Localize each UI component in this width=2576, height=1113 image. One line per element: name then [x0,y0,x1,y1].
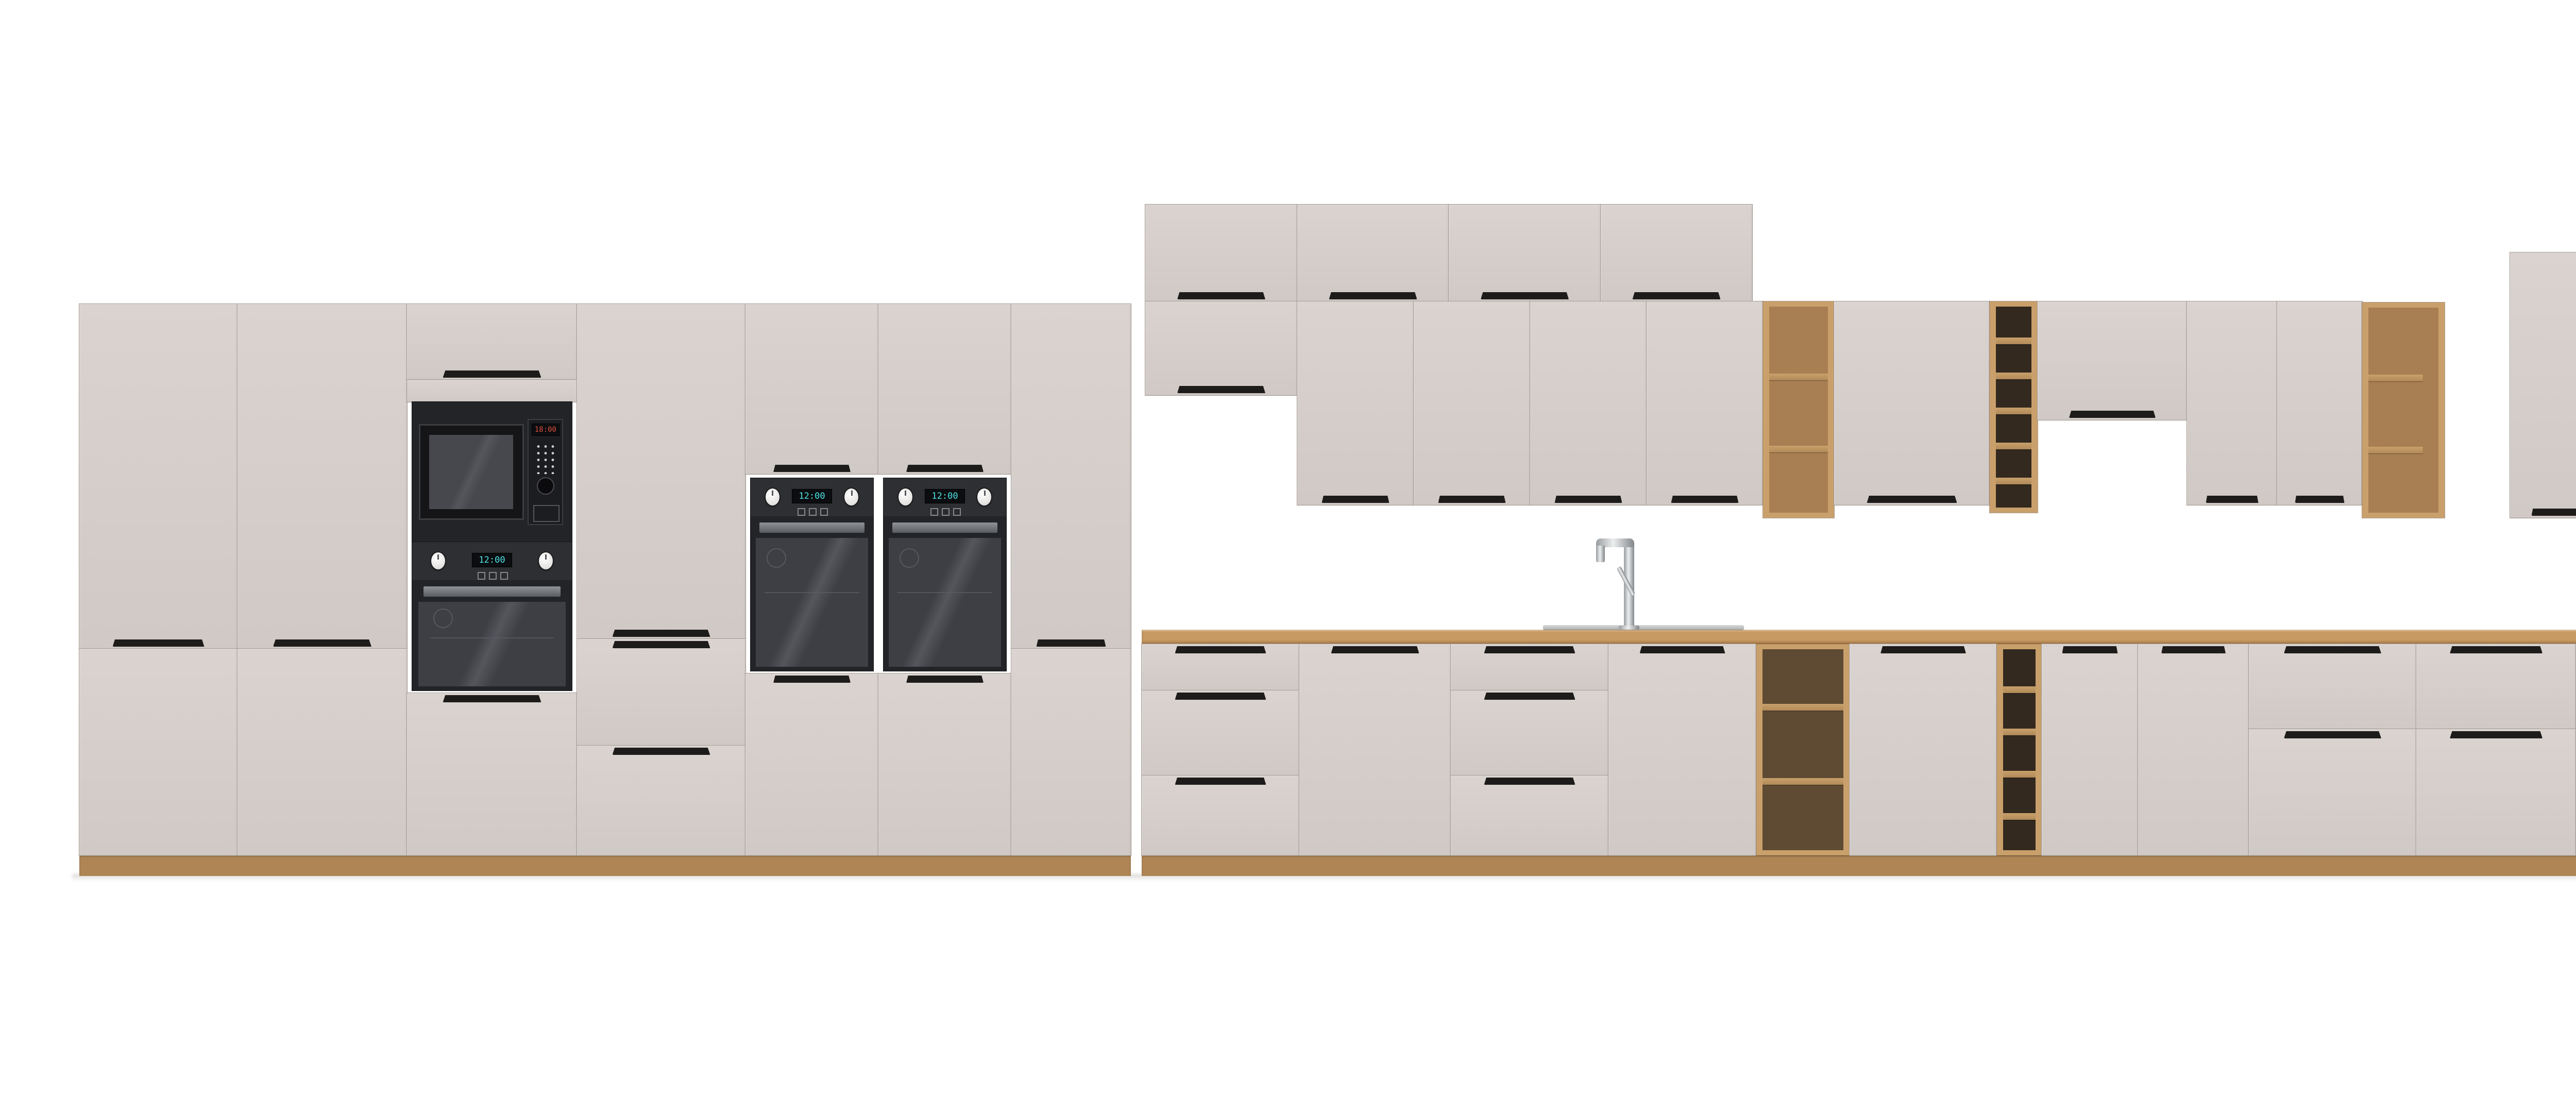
microwave-control-panel: 18:00 [529,420,562,524]
drawer-front[interactable] [878,673,1011,855]
wall-top-box-door[interactable] [1601,205,1752,301]
drawer-front[interactable] [577,639,745,746]
oven-door-handle[interactable] [423,586,561,597]
handle[interactable] [273,639,371,647]
handle[interactable] [1640,646,1725,653]
handle[interactable] [1880,646,1966,653]
oven-knob-left[interactable] [431,552,445,569]
handle[interactable] [1671,496,1739,503]
drawer-front[interactable] [577,746,745,855]
handle[interactable] [1633,292,1721,299]
handle[interactable] [613,748,710,755]
wall-door[interactable] [1647,301,1763,505]
base-door[interactable] [1850,644,1997,855]
shelf-board [1996,338,2031,344]
handle[interactable] [906,465,984,472]
shelf-board [1996,443,2031,449]
oven-door-glass[interactable] [418,602,565,686]
handle[interactable] [2284,731,2381,738]
shelf-board [2003,686,2036,693]
oven-display: 12:00 [925,490,964,503]
open-shelf-wall [1763,301,1834,518]
wall-top-box-door[interactable] [1449,205,1601,301]
top-box-door[interactable] [407,304,577,380]
handle[interactable] [1481,292,1569,299]
oven-door-glass[interactable] [756,538,869,667]
microwave-dial[interactable] [538,478,553,494]
handle[interactable] [613,641,710,648]
shelf-interior [2003,649,2036,850]
built-in-oven[interactable]: 12:00 [412,542,572,690]
handle[interactable] [2062,646,2118,653]
oven-knob-left[interactable] [766,488,779,505]
handle[interactable] [1484,778,1575,785]
handle[interactable] [613,630,710,637]
oven-control-panel: 12:00 [751,478,873,516]
wall-door[interactable] [1834,301,1990,505]
glass-reflection-circle [767,548,786,568]
drawer-front[interactable] [1142,644,1299,690]
microwave-window-frame [420,426,522,518]
wall-top-box-door[interactable] [1145,205,1297,301]
filler-panel [407,380,577,402]
tall-door[interactable] [577,304,745,639]
handle[interactable] [906,676,984,683]
handle[interactable] [1177,292,1265,299]
wall-short-door[interactable] [1145,301,1297,395]
shelf-board [1769,374,1828,380]
base-door[interactable] [2416,729,2576,855]
base-door[interactable] [2249,729,2416,855]
built-in-oven[interactable]: 12:00 [751,478,873,671]
shelf-board [2003,813,2036,820]
handle[interactable] [1331,646,1419,653]
oven-touch-button[interactable] [942,508,950,516]
plinth-base-run [1142,855,2576,876]
drawer-front[interactable] [2416,644,2576,729]
oven-control-panel: 12:00 [412,542,572,580]
glass-reflection-circle [900,548,919,568]
oven-touch-button[interactable] [930,508,938,516]
oven-touch-button[interactable] [500,572,508,580]
wall-door[interactable] [2510,252,2576,518]
drawer-front[interactable] [1142,775,1299,855]
kitchen-cabinet-render: 18:0012:0012:0012:0012:00 [0,0,2576,1113]
base-door[interactable] [2138,644,2249,855]
oven-touch-button[interactable] [478,572,485,580]
handle[interactable] [2284,646,2381,653]
tall-door[interactable] [79,304,238,649]
drawer-front[interactable] [1451,690,1608,775]
shelf-board [1996,478,2031,484]
handle[interactable] [773,465,851,472]
drawer-front[interactable] [2249,644,2416,729]
handle[interactable] [1175,778,1266,785]
oven-touch-button[interactable] [798,508,805,516]
handle[interactable] [1175,646,1266,653]
handle[interactable] [773,676,851,683]
bottle-rack-base [1997,644,2042,855]
handle[interactable] [2450,646,2543,653]
shelf-board [1762,704,1843,711]
handle[interactable] [113,639,205,647]
drawer-front[interactable] [1451,775,1608,855]
drawer-front[interactable] [745,673,878,855]
handle[interactable] [443,370,541,378]
oven-knob-right[interactable] [539,552,553,569]
shelf-interior [2368,308,2438,513]
shelf-interior [1769,307,1828,513]
microwave-display: 18:00 [532,424,559,435]
shelf-board [2368,447,2423,453]
drawer-front[interactable] [407,693,577,855]
faucet-base [1619,626,1639,630]
handle[interactable] [1867,496,1957,503]
wall-door[interactable] [1297,301,1414,505]
shelf-interior [1996,307,2031,508]
wall-top-box-door[interactable] [1297,205,1449,301]
shelf-board [2368,375,2423,381]
shelf-board [2003,729,2036,735]
oven-knob-right[interactable] [844,488,858,505]
shelf-board [2003,771,2036,778]
open-shelf-wall [2362,302,2445,518]
oven-display: 12:00 [792,490,832,503]
oven-door-handle[interactable] [759,522,865,533]
glass-reflection-circle [433,609,453,628]
handle[interactable] [2450,731,2543,738]
microwave-window [429,435,513,509]
handle[interactable] [1438,496,1506,503]
shelf-interior [1762,649,1843,850]
shelf-board [1769,446,1828,452]
oven-knob-left[interactable] [899,488,912,505]
glass-reflection-line [765,592,859,593]
oven-touch-button[interactable] [809,508,817,516]
faucet-spout-tip [1596,546,1605,562]
oven-knob-right[interactable] [977,488,991,505]
drawer-front[interactable] [1451,644,1608,690]
shelf-board [1996,373,2031,379]
handle[interactable] [2069,411,2156,418]
oven-touch-button[interactable] [953,508,961,516]
wall-door[interactable] [2187,301,2277,505]
handle[interactable] [1555,496,1622,503]
tall-door[interactable] [238,304,407,649]
handle[interactable] [1484,693,1575,700]
handle[interactable] [1484,646,1575,653]
base-door[interactable] [2042,644,2138,855]
wall-door[interactable] [1530,301,1647,505]
handle[interactable] [443,695,541,702]
tall-door-lower[interactable] [1011,649,1131,855]
open-shelf-base [1756,644,1850,855]
handle[interactable] [1037,639,1106,647]
sink-base-door[interactable] [1608,644,1756,855]
oven-door-glass[interactable] [889,538,1002,667]
oven-top-door[interactable] [745,304,878,474]
glass-reflection-line [430,637,554,638]
tall-door-lower[interactable] [238,649,407,855]
handle[interactable] [1322,496,1389,503]
wall-door[interactable] [2277,301,2362,505]
oven-door-handle[interactable] [892,522,998,533]
microwave-keypad[interactable] [535,443,556,474]
faucet[interactable] [1592,533,1659,630]
built-in-microwave[interactable]: 18:00 [412,402,572,542]
oven-display: 12:00 [472,553,512,567]
handle[interactable] [1177,386,1265,393]
handle[interactable] [2532,509,2576,516]
shelf-board [1996,408,2031,414]
built-in-oven[interactable]: 12:00 [884,478,1006,671]
shelf-board [1762,778,1843,785]
countertop [1142,630,2576,644]
handle[interactable] [1329,292,1417,299]
base-door[interactable] [1299,644,1451,855]
bottle-rack-wall [1990,301,2038,513]
drawer-front[interactable] [1142,690,1299,775]
oven-top-door[interactable] [878,304,1011,474]
tall-door-lower[interactable] [79,649,238,855]
wall-short-door[interactable] [2038,301,2187,420]
tall-door[interactable] [1011,304,1131,649]
handle[interactable] [1175,693,1266,700]
microwave-door-button[interactable] [533,505,560,521]
oven-touch-button[interactable] [489,572,497,580]
handle[interactable] [2206,496,2259,503]
handle[interactable] [2161,646,2226,653]
plinth-left-run [79,855,1131,876]
glass-reflection-line [897,592,992,593]
oven-control-panel: 12:00 [884,478,1006,516]
wall-door[interactable] [1414,301,1530,505]
handle[interactable] [2295,496,2345,503]
oven-touch-button[interactable] [820,508,828,516]
